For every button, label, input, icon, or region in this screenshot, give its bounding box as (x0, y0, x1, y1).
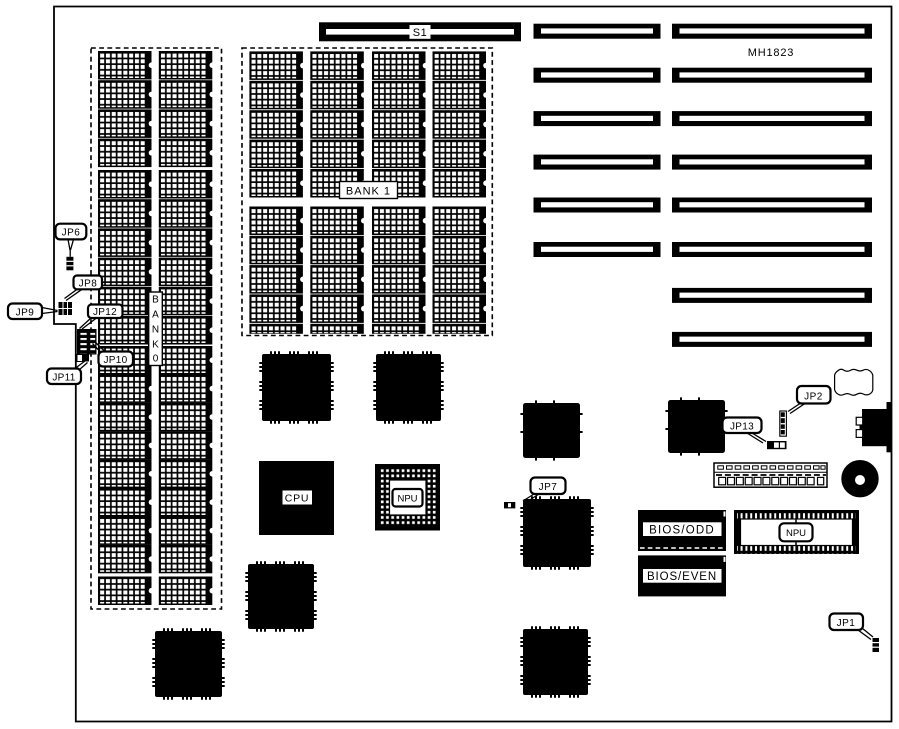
svg-text:JP9: JP9 (16, 307, 35, 318)
svg-text:JP8: JP8 (79, 279, 98, 290)
svg-text:BANK 1: BANK 1 (346, 186, 391, 198)
svg-text:CPU: CPU (285, 493, 310, 505)
svg-text:BIOS/EVEN: BIOS/EVEN (647, 571, 717, 583)
svg-text:B: B (152, 295, 159, 306)
svg-text:K: K (152, 340, 159, 351)
svg-text:JP7: JP7 (539, 482, 558, 493)
svg-text:JP13: JP13 (730, 421, 754, 432)
svg-text:S1: S1 (413, 27, 427, 39)
svg-text:JP12: JP12 (93, 307, 117, 318)
svg-text:0: 0 (153, 354, 159, 365)
svg-text:N: N (152, 325, 159, 336)
svg-text:JP2: JP2 (804, 391, 823, 402)
svg-text:MH1823: MH1823 (748, 47, 794, 59)
svg-text:JP10: JP10 (104, 355, 128, 366)
svg-text:BIOS/ODD: BIOS/ODD (649, 525, 715, 537)
svg-text:JP6: JP6 (62, 228, 81, 239)
svg-text:NPU: NPU (786, 528, 806, 539)
svg-text:JP11: JP11 (52, 372, 75, 383)
svg-text:NPU: NPU (397, 494, 417, 505)
svg-text:A: A (152, 310, 159, 321)
svg-text:JP1: JP1 (837, 618, 856, 629)
